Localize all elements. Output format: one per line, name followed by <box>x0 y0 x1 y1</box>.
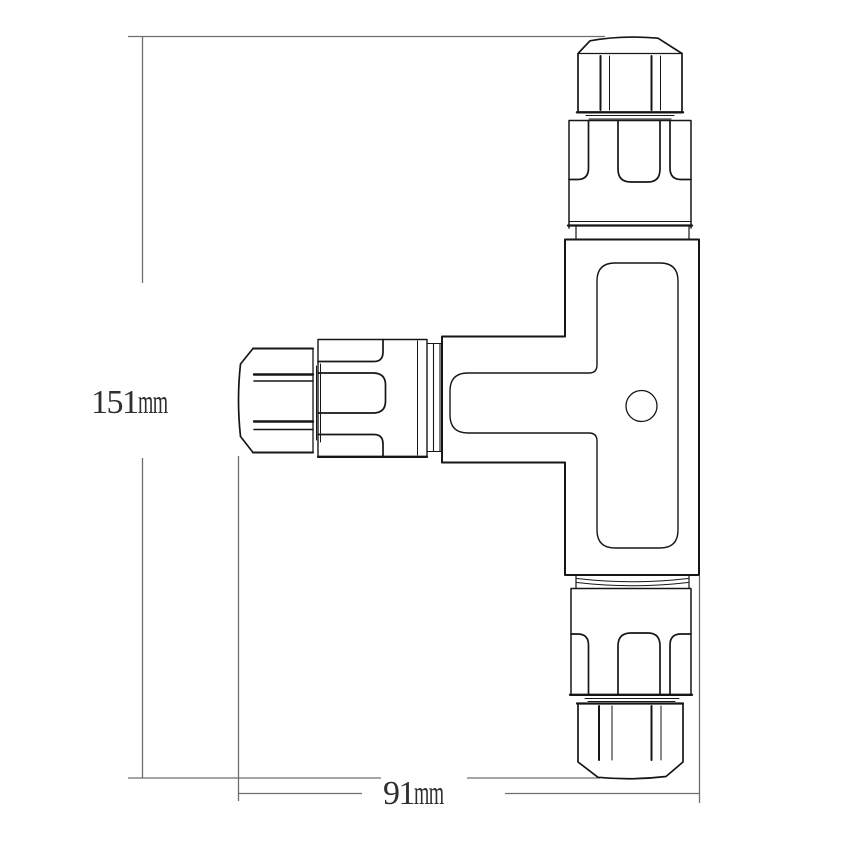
width-dimension-label: 91mm <box>381 777 467 811</box>
t-body-outline <box>442 240 699 576</box>
top-cap-facet-lines <box>601 56 652 110</box>
left-gland-center-groove <box>318 373 386 413</box>
left-gland-bottom-groove <box>318 435 383 457</box>
left-cable-gland <box>239 340 443 457</box>
left-gland-body <box>318 340 427 457</box>
bottom-washer-rings <box>585 699 679 702</box>
width-dimension-value: 91 <box>383 775 414 812</box>
top-gland-left-groove <box>569 121 589 180</box>
height-dimension-unit: mm <box>138 386 168 420</box>
bottom-cable-gland <box>570 576 692 779</box>
bottom-cap-facet-lines-thin <box>612 706 661 760</box>
top-gland-center-groove <box>618 121 660 182</box>
top-gland-right-groove <box>670 121 691 180</box>
t-body <box>442 240 699 576</box>
bottom-collar-curves <box>577 579 688 586</box>
connector-part <box>239 37 700 779</box>
top-cap-facet-lines-thin <box>610 56 661 110</box>
left-cap-dome <box>239 349 254 453</box>
height-dimension-label: 151mm <box>89 386 190 420</box>
t-connector-line-drawing <box>0 0 850 850</box>
bottom-cap-facet-lines <box>599 706 652 760</box>
left-cap-hex <box>253 349 313 453</box>
bottom-gland-right-groove <box>670 634 691 694</box>
left-gland-top-groove <box>318 340 383 362</box>
top-collar <box>576 226 689 239</box>
top-cable-gland <box>568 37 692 238</box>
left-neck <box>427 344 442 452</box>
width-dimension-unit: mm <box>414 777 444 811</box>
bottom-gland-center-groove <box>618 633 660 694</box>
height-dimension-value: 151 <box>91 384 138 421</box>
top-cap-dome <box>578 37 682 112</box>
bottom-cap-dome <box>578 704 683 779</box>
bottom-gland-left-groove <box>571 634 589 694</box>
top-washer-rings <box>586 116 674 120</box>
technical-drawing-canvas: 151mm 91mm <box>0 0 850 850</box>
